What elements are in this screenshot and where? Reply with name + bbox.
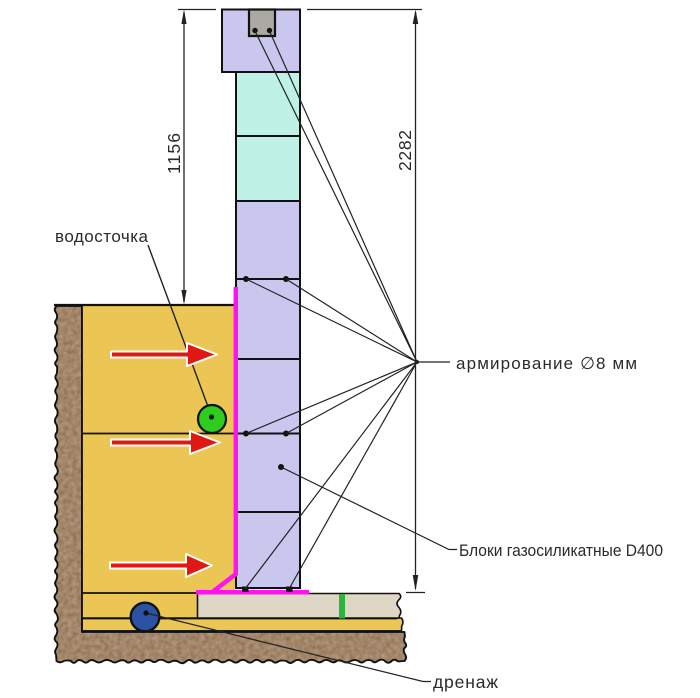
svg-text:Блоки газосиликатные D400: Блоки газосиликатные D400 [459,541,663,560]
svg-text:армирование ∅8 мм: армирование ∅8 мм [456,354,637,373]
svg-text:2282: 2282 [395,130,415,171]
svg-text:дренаж: дренаж [433,672,498,692]
svg-text:1156: 1156 [164,133,184,174]
svg-text:водосточка: водосточка [55,227,149,246]
